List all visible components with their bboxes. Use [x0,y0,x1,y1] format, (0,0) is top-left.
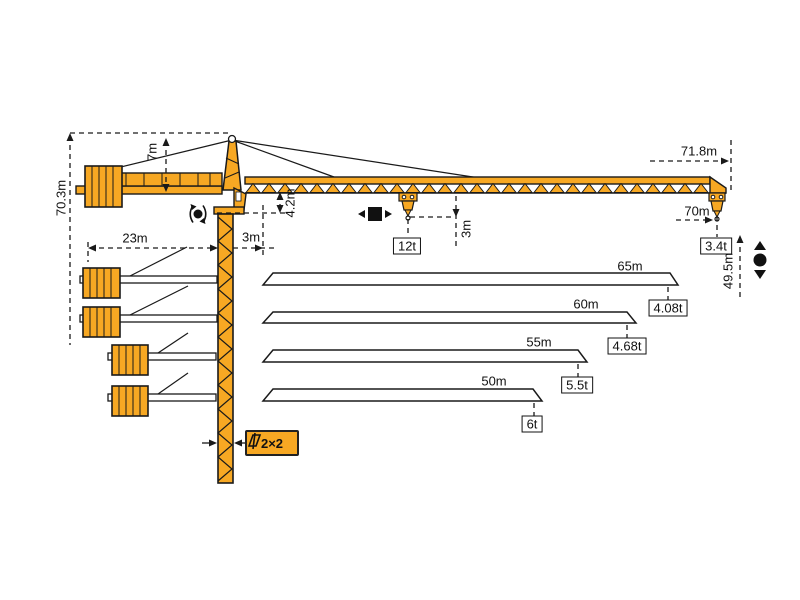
variant-length-65m: 65m [617,260,642,273]
trolley-travel-icon [358,207,392,221]
variant-length-60m: 60m [573,298,598,311]
counterweight-option-rows [80,247,217,416]
head-height-label: 7m [146,143,159,161]
mast-section-badge: 2×2 [245,430,299,456]
jib-depth-label: 4.2m [284,189,297,218]
variant-load-60m: 4.68t [608,338,647,355]
apex-pulley-icon [229,136,236,143]
max-load-badge: 12t [393,238,421,255]
mast-cross-section-icon [247,432,263,450]
slewing-rotation-icon [190,204,206,224]
radius-label: 70m [684,205,709,218]
tower-head [223,136,241,191]
tip-radius-label: 71.8m [681,145,717,158]
jib-outline-60m [263,312,636,323]
cw-row-1 [80,247,217,298]
variant-length-55m: 55m [526,336,551,349]
cw-row-4 [108,373,216,416]
hoist-up-down-icon [754,241,767,279]
tip-load-badge: 3.4t [700,238,732,255]
jib-outline-55m [263,350,587,362]
jib [245,177,726,193]
crane-diagram: 70.3m 7m 23m 3m 4.2m 3m 71.8m 70m 49.5m … [0,0,800,600]
root-offset-label: 3m [242,231,260,244]
counterweight-stack [85,166,122,207]
trolley-hook [399,193,417,220]
variant-load-55m: 5.5t [561,377,593,394]
variant-length-50m: 50m [481,375,506,388]
counter-jib-label: 23m [122,232,147,245]
variant-load-65m: 4.08t [649,300,688,317]
height-right-label: 49.5m [722,253,735,289]
cw-row-3 [108,333,216,375]
mast-section-label: 2×2 [261,436,283,451]
variant-load-50m: 6t [522,416,543,433]
hook-offset-label: 3m [460,220,473,238]
total-height-label: 70.3m [55,180,68,216]
tower-mast [218,214,233,483]
jib-outline-50m [263,389,542,401]
jib-outline-65m [263,273,678,285]
